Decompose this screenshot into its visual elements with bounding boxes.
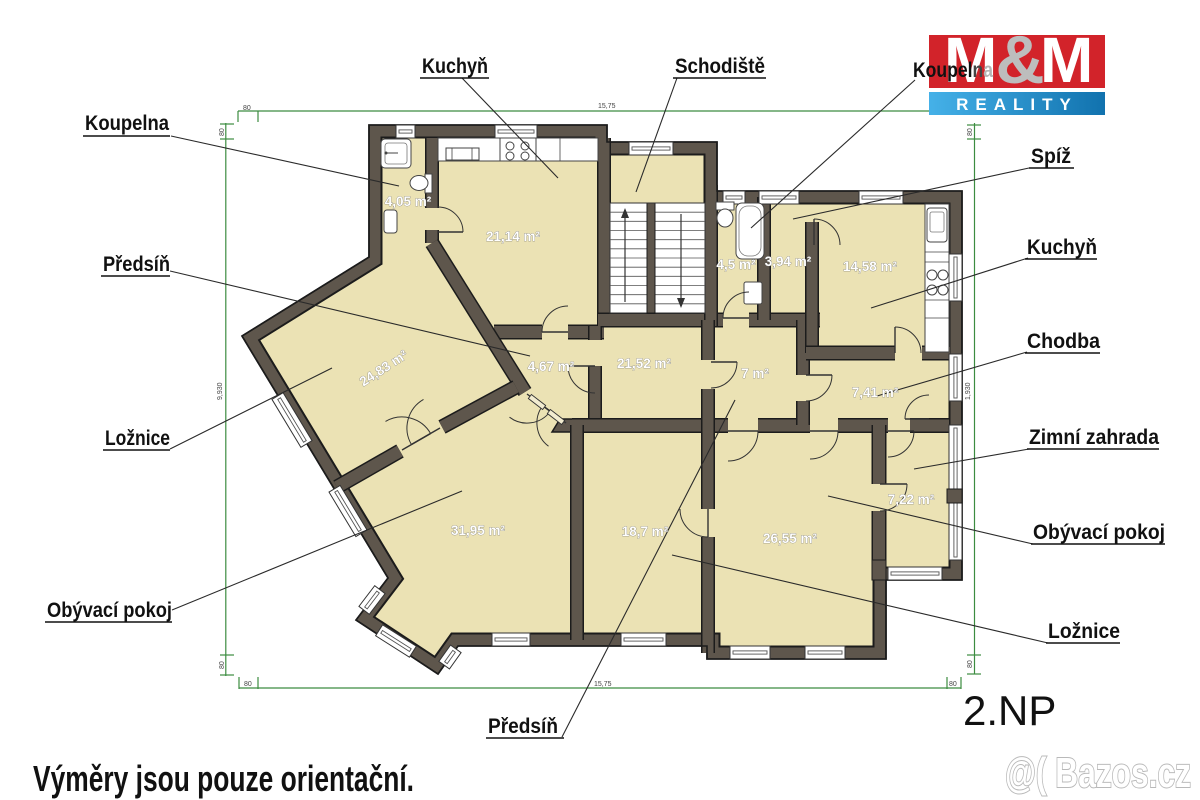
svg-text:4,05 m²: 4,05 m² [385,194,432,209]
svg-text:80: 80 [243,105,251,112]
svg-text:80: 80 [244,681,252,688]
svg-text:Ložnice: Ložnice [105,427,170,450]
svg-text:31,95 m²: 31,95 m² [451,523,506,538]
svg-text:4,5 m²: 4,5 m² [716,257,756,272]
svg-text:Předsíň: Předsíň [103,253,170,276]
svg-text:Koupelna: Koupelna [913,59,993,82]
svg-text:80: 80 [219,128,226,136]
svg-text:@( Bazos.cz: @( Bazos.cz [1005,749,1191,796]
svg-text:21,14 m²: 21,14 m² [486,229,541,244]
svg-text:Spíž: Spíž [1031,145,1071,168]
svg-text:3,94 m²: 3,94 m² [765,254,812,269]
svg-text:2.NP: 2.NP [963,687,1056,734]
svg-text:18,7 m²: 18,7 m² [622,524,669,539]
svg-text:Kuchyň: Kuchyň [1027,236,1097,259]
svg-text:1,930: 1,930 [965,382,972,400]
svg-text:80: 80 [967,660,974,668]
svg-text:80: 80 [967,128,974,136]
svg-text:14,58 m²: 14,58 m² [843,259,898,274]
svg-text:Ložnice: Ložnice [1048,620,1120,643]
svg-text:80: 80 [949,681,957,688]
svg-text:Schodiště: Schodiště [675,55,765,78]
svg-text:4,67 m²: 4,67 m² [528,359,575,374]
svg-text:Kuchyň: Kuchyň [422,55,488,78]
svg-text:M: M [1040,24,1093,96]
svg-text:7,22 m²: 7,22 m² [888,492,935,507]
svg-text:Výměry jsou pouze orientační.: Výměry jsou pouze orientační. [33,758,414,799]
svg-text:Zimní zahrada: Zimní zahrada [1029,426,1159,449]
svg-text:REALITY: REALITY [956,95,1078,114]
svg-text:Obývací pokoj: Obývací pokoj [1033,521,1165,544]
svg-text:26,55 m²: 26,55 m² [763,531,818,546]
svg-text:21,52 m²: 21,52 m² [617,356,672,371]
svg-text:80: 80 [219,661,226,669]
svg-text:Obývací pokoj: Obývací pokoj [47,599,172,622]
svg-text:9,930: 9,930 [217,382,224,400]
svg-text:7 m²: 7 m² [741,366,769,381]
svg-text:7,41 m²: 7,41 m² [852,385,899,400]
svg-text:15,75: 15,75 [598,103,616,110]
svg-text:Chodba: Chodba [1027,330,1100,353]
svg-text:15,75: 15,75 [594,681,612,688]
svg-text:Koupelna: Koupelna [85,112,169,135]
svg-text:&: & [995,22,1044,98]
svg-text:Předsíň: Předsíň [488,715,558,738]
